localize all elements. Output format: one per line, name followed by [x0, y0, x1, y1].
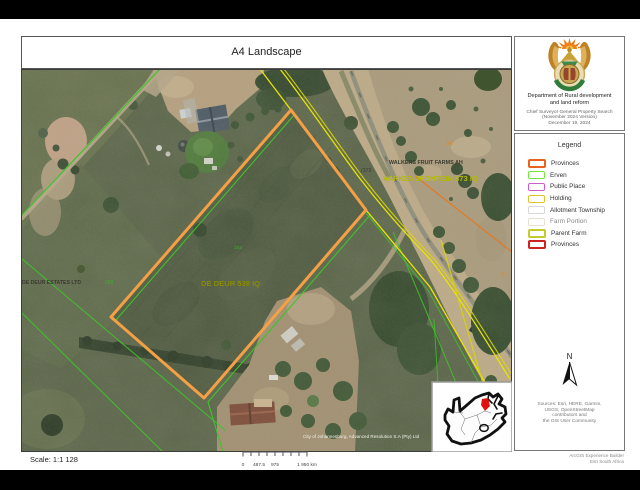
svg-text:559: 559 — [105, 280, 114, 286]
svg-text:VARKENSFONTEIN 373 IQ: VARKENSFONTEIN 373 IQ — [383, 174, 478, 183]
svg-text:WALKERS FRUIT FARMS AH: WALKERS FRUIT FARMS AH — [389, 160, 463, 166]
svg-text:City of Johannesburg, Advanced: City of Johannesburg, Advanced Resolutio… — [303, 434, 420, 439]
svg-text:975: 975 — [271, 462, 279, 468]
svg-text:DE DEUR ESTATES LTD: DE DEUR ESTATES LTD — [22, 280, 81, 286]
svg-text:343: 343 — [234, 245, 242, 251]
svg-text:0: 0 — [242, 462, 245, 468]
svg-text:487.5: 487.5 — [253, 462, 265, 468]
svg-text:1 950 km: 1 950 km — [297, 462, 317, 468]
svg-text:(373: (373 — [361, 168, 371, 174]
svg-text:DE DEUR 539 IQ: DE DEUR 539 IQ — [201, 279, 260, 288]
svg-text:347: 347 — [446, 141, 455, 147]
